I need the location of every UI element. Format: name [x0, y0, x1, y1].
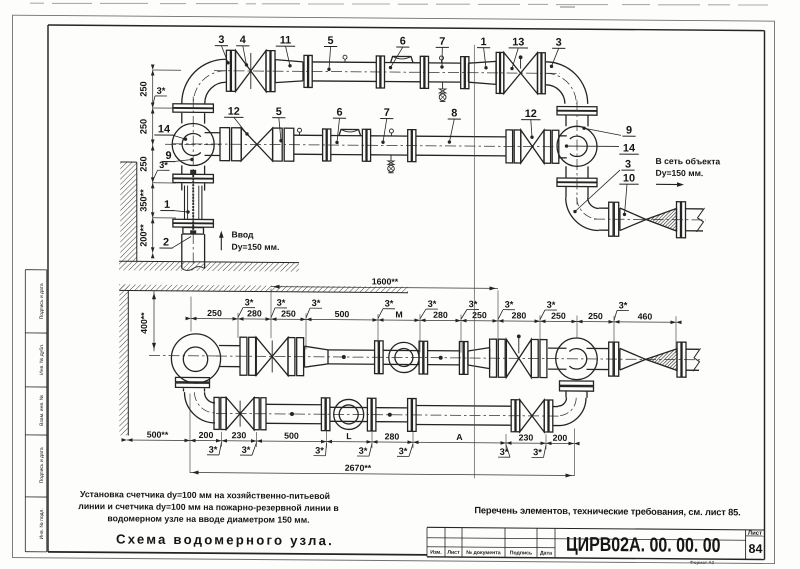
svg-text:1: 1: [481, 36, 487, 48]
svg-text:3: 3: [556, 37, 562, 49]
svg-text:3*: 3*: [547, 300, 556, 310]
svg-text:230: 230: [232, 430, 247, 440]
svg-text:ЦИРВ02А. 00. 00. 00: ЦИРВ02А. 00. 00. 00: [566, 534, 721, 557]
svg-text:3*: 3*: [277, 298, 286, 308]
svg-text:Взам. инв. №: Взам. инв. №: [39, 395, 45, 426]
svg-text:3*: 3*: [209, 445, 218, 455]
svg-text:2: 2: [163, 236, 169, 248]
svg-text:250: 250: [588, 311, 603, 321]
svg-text:Инв. № подл.: Инв. № подл.: [39, 508, 45, 539]
svg-text:200: 200: [199, 430, 214, 440]
svg-text:3*: 3*: [245, 297, 254, 307]
svg-text:Dу=150 мм.: Dу=150 мм.: [232, 242, 280, 252]
svg-text:500: 500: [284, 431, 299, 441]
svg-text:250: 250: [281, 309, 296, 319]
svg-text:Подпись и дата: Подпись и дата: [39, 447, 45, 483]
svg-text:3*: 3*: [312, 298, 321, 308]
svg-text:12: 12: [525, 108, 537, 120]
svg-text:В сеть объекта: В сеть объекта: [656, 156, 721, 167]
svg-text:250: 250: [139, 156, 149, 171]
svg-text:350**: 350**: [139, 189, 149, 212]
svg-text:2670**: 2670**: [345, 463, 372, 473]
svg-text:280: 280: [512, 310, 527, 320]
svg-text:3*: 3*: [533, 447, 542, 457]
svg-text:Подпись: Подпись: [510, 550, 533, 556]
svg-text:250: 250: [551, 311, 566, 321]
svg-text:Дата: Дата: [540, 551, 552, 557]
svg-text:линии и счетчика dу=100 мм на: линии и счетчика dу=100 мм на пожарно-ре…: [78, 501, 338, 513]
svg-text:6: 6: [336, 107, 342, 119]
svg-text:9: 9: [626, 125, 632, 137]
svg-text:3*: 3*: [399, 446, 408, 456]
svg-text:Формат А3: Формат А3: [690, 560, 715, 565]
svg-text:4: 4: [240, 34, 246, 46]
svg-text:3*: 3*: [505, 299, 514, 309]
svg-text:3*: 3*: [428, 299, 437, 309]
svg-text:3*: 3*: [469, 299, 478, 309]
svg-text:Инв. № дубл.: Инв. № дубл.: [39, 344, 45, 375]
svg-text:280: 280: [385, 431, 400, 441]
svg-text:9: 9: [165, 150, 171, 162]
svg-text:Перечень элементов, технически: Перечень элементов, технические требован…: [474, 505, 740, 517]
svg-text:500**: 500**: [147, 430, 169, 440]
svg-text:11: 11: [280, 34, 292, 46]
svg-text:13: 13: [512, 36, 524, 48]
svg-text:водомерном узле на вводе диаме: водомерном узле на вводе диаметром 150 м…: [107, 513, 309, 525]
svg-text:250: 250: [139, 81, 149, 96]
svg-text:200: 200: [553, 433, 568, 443]
svg-text:7: 7: [439, 36, 445, 48]
svg-text:М: М: [395, 310, 402, 320]
svg-text:1600**: 1600**: [372, 276, 399, 286]
svg-text:400**: 400**: [139, 312, 149, 334]
svg-text:Подпись и дата: Подпись и дата: [39, 283, 45, 319]
svg-text:250: 250: [207, 308, 222, 318]
svg-text:Dу=150 мм.: Dу=150 мм.: [656, 168, 704, 178]
svg-text:8: 8: [451, 107, 457, 119]
svg-text:Изм.: Изм.: [430, 550, 442, 556]
svg-text:Схема водомерного узла.: Схема водомерного узла.: [116, 532, 334, 549]
svg-text:5: 5: [276, 106, 282, 118]
svg-text:1: 1: [164, 199, 170, 211]
svg-text:230: 230: [519, 432, 534, 442]
svg-text:№ документа: № документа: [466, 550, 500, 556]
svg-text:14: 14: [623, 142, 635, 154]
svg-text:280: 280: [247, 308, 262, 318]
svg-text:10: 10: [623, 172, 635, 184]
svg-text:3: 3: [625, 159, 631, 171]
svg-text:L: L: [346, 431, 352, 441]
svg-text:14: 14: [158, 123, 170, 135]
svg-text:3*: 3*: [242, 445, 251, 455]
svg-text:200**: 200**: [139, 224, 149, 247]
svg-text:500: 500: [335, 309, 350, 319]
svg-text:5: 5: [328, 35, 334, 47]
svg-text:6: 6: [400, 35, 406, 47]
svg-text:Ввод: Ввод: [232, 229, 255, 239]
svg-text:280: 280: [433, 310, 448, 320]
svg-text:7: 7: [384, 107, 390, 119]
svg-text:Лист: Лист: [447, 550, 460, 556]
svg-text:3: 3: [218, 34, 224, 46]
svg-text:84: 84: [749, 542, 763, 556]
svg-text:Установка счетчика dу=100 мм н: Установка счетчика dу=100 мм на хозяйств…: [80, 489, 330, 501]
svg-text:12: 12: [228, 106, 240, 118]
svg-text:3*: 3*: [315, 445, 324, 455]
svg-text:3*: 3*: [385, 299, 394, 309]
svg-text:3*: 3*: [157, 86, 166, 96]
svg-text:3*: 3*: [619, 300, 628, 310]
svg-text:460: 460: [638, 311, 653, 321]
svg-text:А: А: [456, 432, 463, 442]
svg-text:250: 250: [139, 119, 149, 134]
svg-text:3*: 3*: [359, 446, 368, 456]
svg-text:Лист: Лист: [748, 531, 762, 537]
